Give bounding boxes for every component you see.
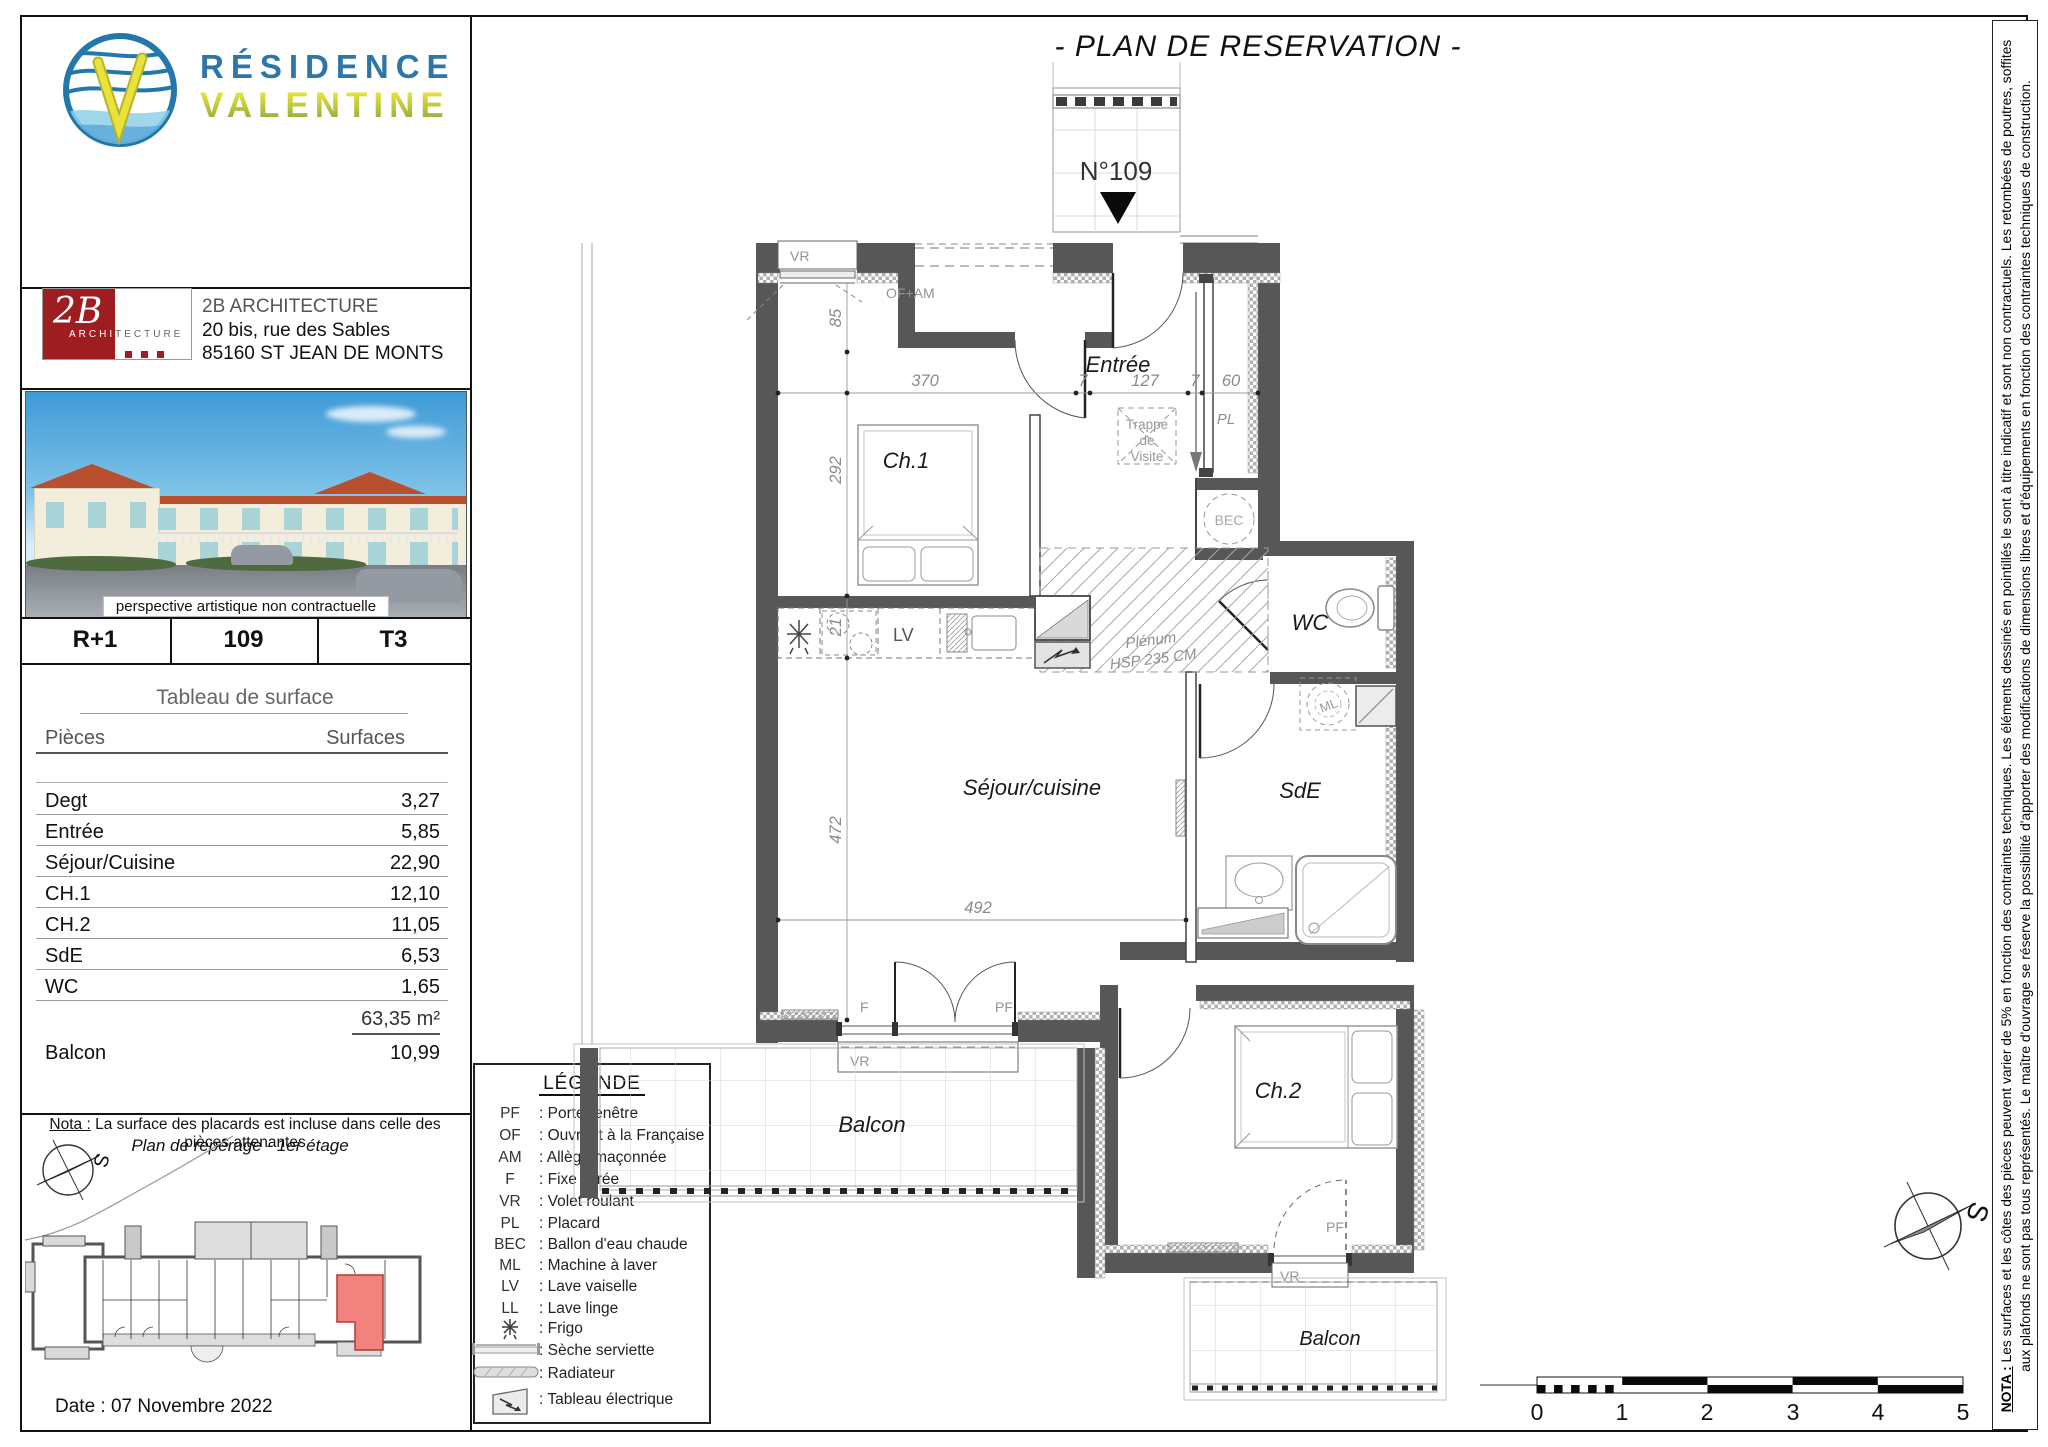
bedroom-2: Ch.2 bbox=[1168, 1026, 1397, 1252]
nota-line1: NOTA : Les surfaces et les côtes des piè… bbox=[1997, 26, 2016, 1426]
vr-label: VR bbox=[790, 248, 809, 264]
electrical-panel-icon bbox=[1035, 642, 1090, 668]
of-am-label: OF+AM bbox=[886, 285, 935, 301]
radiator-icon bbox=[1176, 780, 1185, 836]
wc-room: WC bbox=[1292, 586, 1394, 635]
dim-85: 85 bbox=[827, 308, 845, 327]
dim-60: 60 bbox=[1222, 372, 1241, 390]
access-corridor: N°109 bbox=[915, 62, 1258, 244]
dim-370: 370 bbox=[911, 372, 939, 390]
bathroom: ML SdE bbox=[1198, 678, 1396, 944]
dim-21: 21 bbox=[827, 618, 845, 637]
dim-292: 292 bbox=[827, 456, 845, 485]
pf-label: PF bbox=[1326, 1219, 1344, 1235]
floor-plan: N°109 bbox=[0, 0, 2048, 1447]
balcony-ch2: Balcon bbox=[1184, 1278, 1446, 1400]
radiator-icon bbox=[1168, 1243, 1238, 1252]
pf-label: PF bbox=[995, 999, 1013, 1015]
dim-7: 7 bbox=[1078, 372, 1088, 390]
towel-dryer-icon bbox=[1198, 908, 1288, 938]
scale-2: 2 bbox=[1701, 1399, 1714, 1425]
room-label-pl: PL bbox=[1217, 411, 1235, 428]
scale-bar: 0 1 2 3 4 5 bbox=[1480, 1377, 1969, 1425]
nota-label: NOTA : bbox=[1999, 1366, 2014, 1412]
trappe-label3: Visite bbox=[1131, 449, 1164, 464]
nota-line2: aux plafonds ne sont pas tous représenté… bbox=[2016, 26, 2035, 1426]
entree-annotations: Entrée Trappe de Visite PL BEC bbox=[1086, 292, 1254, 544]
room-label-balcon: Balcon bbox=[1299, 1328, 1360, 1350]
unit-number-marker: N°109 bbox=[1080, 156, 1153, 186]
scale-0: 0 bbox=[1531, 1399, 1544, 1425]
compass-icon: S bbox=[1884, 1182, 1995, 1270]
neighbour-boundary bbox=[582, 243, 592, 1044]
frigo-icon bbox=[787, 620, 811, 654]
living-room: Séjour/cuisine bbox=[782, 775, 1185, 1019]
room-label-ch1: Ch.1 bbox=[883, 448, 929, 473]
nota-rotated-text: NOTA : Les surfaces et les côtes des piè… bbox=[1996, 26, 2036, 1426]
nota-text1: Les surfaces et les côtes des pièces peu… bbox=[1999, 40, 2014, 1367]
dim-127: 127 bbox=[1131, 372, 1159, 390]
scale-3: 3 bbox=[1787, 1399, 1800, 1425]
dim-472: 472 bbox=[827, 816, 845, 844]
trappe-label2: de bbox=[1139, 433, 1154, 448]
room-label-balcon: Balcon bbox=[838, 1112, 905, 1137]
ml-label: ML bbox=[1317, 695, 1339, 715]
scale-1: 1 bbox=[1616, 1399, 1629, 1425]
room-label-sde: SdE bbox=[1279, 778, 1321, 803]
bedroom-1: Ch.1 bbox=[858, 425, 978, 585]
lv-label: LV bbox=[893, 625, 914, 645]
f-label: F bbox=[860, 999, 869, 1015]
dim-492: 492 bbox=[964, 899, 992, 917]
dim-7: 7 bbox=[1190, 372, 1200, 390]
radiator-icon bbox=[782, 1010, 838, 1019]
plan-sheet: RÉSIDENCE VALENTINE 2B ARCHITECTURE 2B A… bbox=[0, 0, 2048, 1447]
compass-s: S bbox=[1960, 1198, 1996, 1226]
trappe-label1: Trappe bbox=[1126, 417, 1168, 432]
balcony-sejour: Balcon bbox=[574, 1044, 1084, 1202]
scale-5: 5 bbox=[1957, 1399, 1970, 1425]
room-label-wc: WC bbox=[1292, 610, 1329, 635]
room-label-ch2: Ch.2 bbox=[1255, 1078, 1301, 1103]
room-label-sejour: Séjour/cuisine bbox=[963, 775, 1101, 800]
scale-4: 4 bbox=[1872, 1399, 1885, 1425]
bec-label: BEC bbox=[1215, 512, 1244, 528]
